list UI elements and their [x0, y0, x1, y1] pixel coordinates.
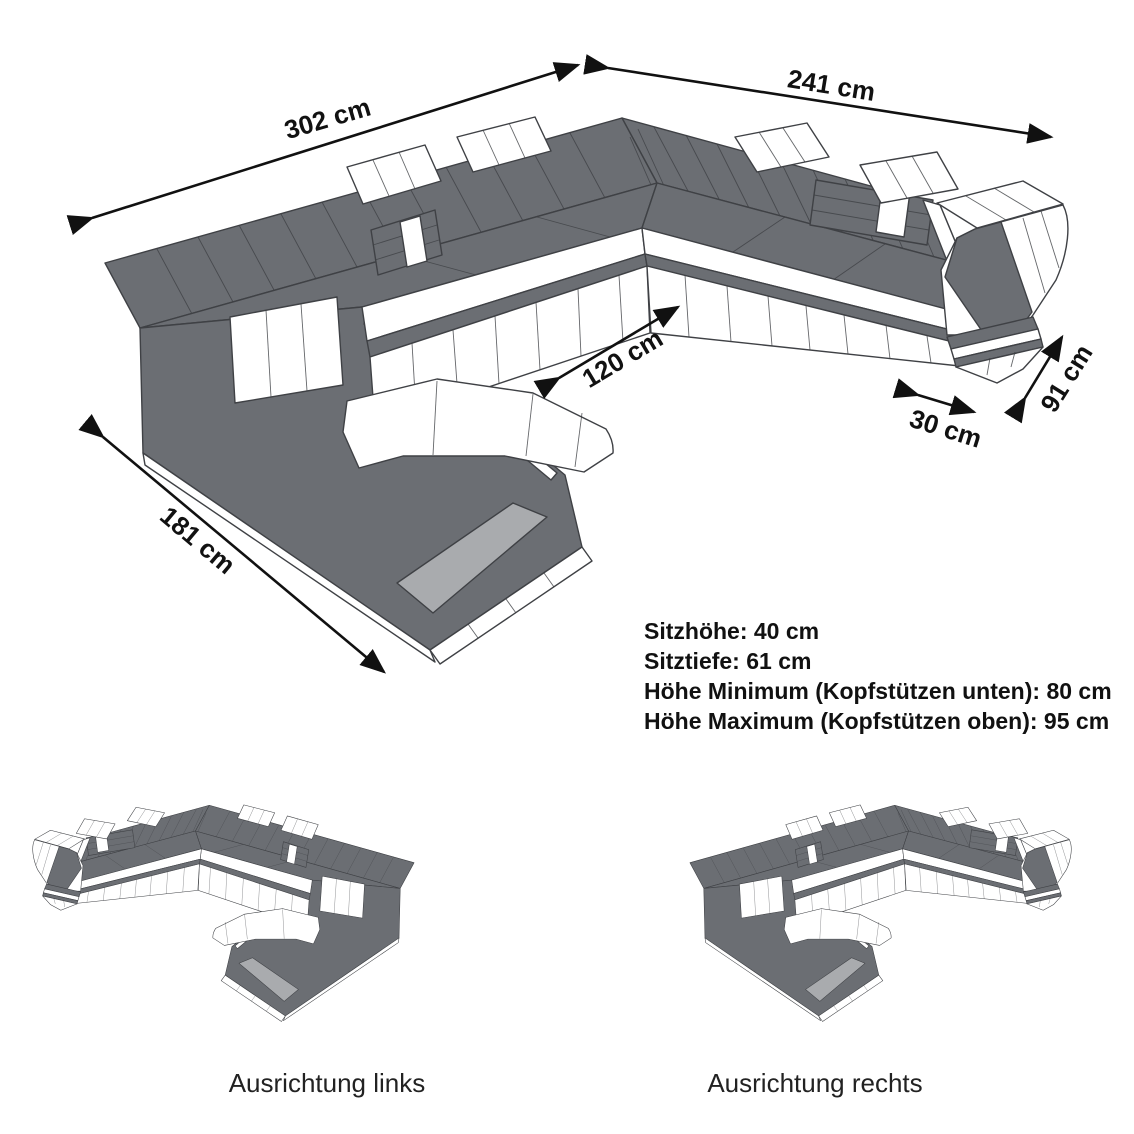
- label-right-depth: 91 cm: [1034, 339, 1099, 417]
- dimension-overlay: 302 cm 241 cm 120 cm 30 cm 91 cm 181 cm: [0, 0, 1134, 1134]
- label-back-left: 302 cm: [281, 92, 374, 146]
- arrow-left-depth: [103, 437, 384, 672]
- dimension-diagram-page: 302 cm 241 cm 120 cm 30 cm 91 cm 181 cm …: [0, 0, 1134, 1134]
- dimension-labels: 302 cm 241 cm 120 cm 30 cm 91 cm 181 cm: [154, 63, 1098, 580]
- spec-seat-depth: Sitztiefe: 61 cm: [644, 646, 1112, 676]
- label-back-right: 241 cm: [786, 63, 878, 107]
- spec-block: Sitzhöhe: 40 cm Sitztiefe: 61 cm Höhe Mi…: [644, 616, 1112, 736]
- caption-orientation-left: Ausrichtung links: [167, 1068, 487, 1099]
- arrow-back-left: [92, 65, 578, 218]
- spec-height-max: Höhe Maximum (Kopfstützen oben): 95 cm: [644, 706, 1112, 736]
- caption-orientation-right: Ausrichtung rechts: [655, 1068, 975, 1099]
- spec-height-min: Höhe Minimum (Kopfstützen unten): 80 cm: [644, 676, 1112, 706]
- spec-seat-height: Sitzhöhe: 40 cm: [644, 616, 1112, 646]
